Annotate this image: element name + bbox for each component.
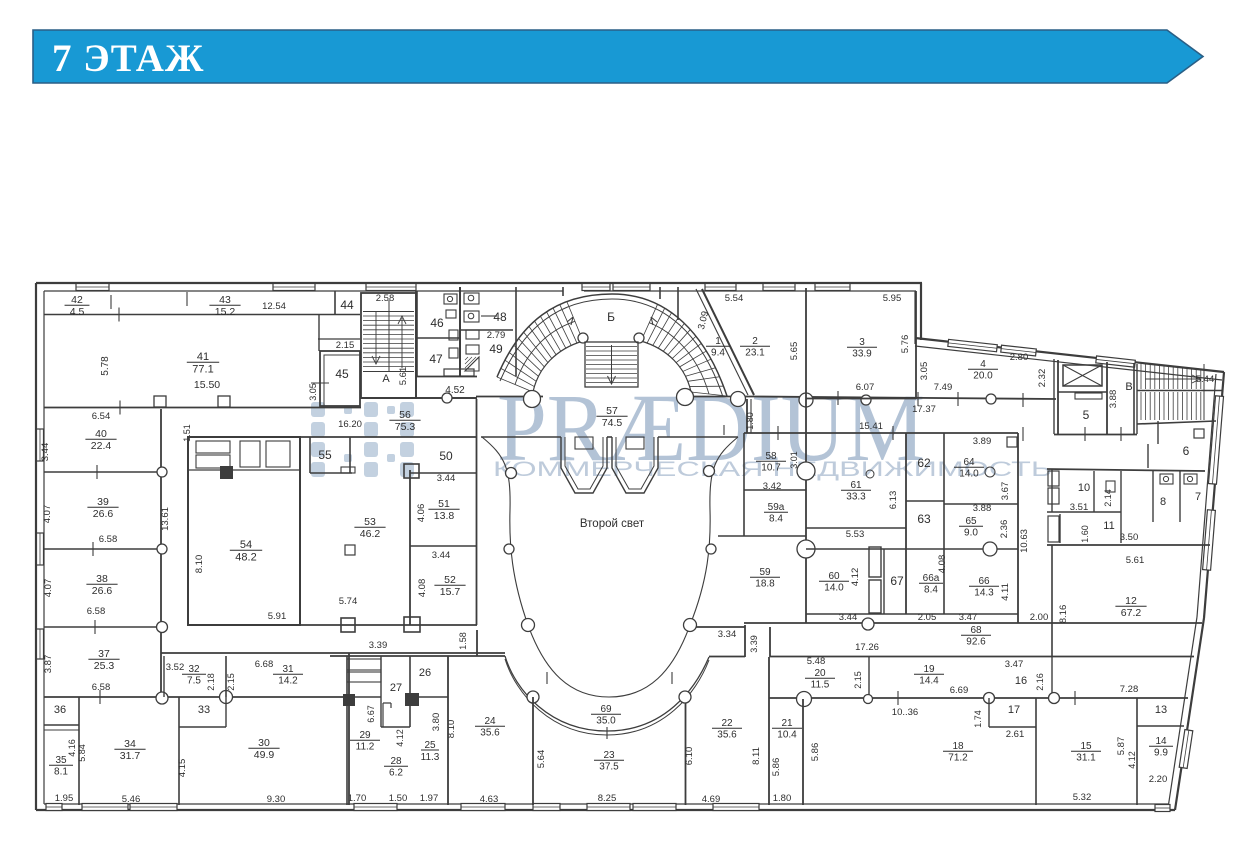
svg-text:33: 33 xyxy=(198,704,210,716)
svg-text:2.16: 2.16 xyxy=(1035,673,1045,691)
svg-text:3.47: 3.47 xyxy=(959,612,978,623)
svg-text:2.05: 2.05 xyxy=(918,612,937,623)
svg-text:2.18: 2.18 xyxy=(206,673,216,691)
svg-text:16.20: 16.20 xyxy=(338,419,362,430)
svg-text:1.80: 1.80 xyxy=(745,412,755,430)
svg-text:3.09: 3.09 xyxy=(696,310,711,331)
svg-text:26: 26 xyxy=(419,667,431,679)
svg-text:14.2: 14.2 xyxy=(278,676,298,687)
svg-text:7.49: 7.49 xyxy=(934,382,953,393)
svg-text:68: 68 xyxy=(970,625,982,636)
svg-text:15.41: 15.41 xyxy=(859,421,883,432)
svg-text:14.3: 14.3 xyxy=(974,588,994,599)
svg-text:8.4: 8.4 xyxy=(924,585,938,596)
svg-text:31.1: 31.1 xyxy=(1076,753,1096,764)
svg-text:59: 59 xyxy=(759,567,771,578)
svg-text:2.61: 2.61 xyxy=(1006,729,1025,740)
svg-text:Б: Б xyxy=(607,310,615,324)
svg-text:1.97: 1.97 xyxy=(420,793,439,804)
svg-text:3.39: 3.39 xyxy=(749,635,759,653)
svg-text:5.86: 5.86 xyxy=(810,743,821,762)
svg-text:44: 44 xyxy=(340,298,354,312)
svg-text:74.5: 74.5 xyxy=(602,417,623,429)
svg-text:4.12: 4.12 xyxy=(850,568,861,587)
svg-text:61: 61 xyxy=(850,480,862,491)
svg-text:7: 7 xyxy=(1195,491,1201,503)
svg-text:32: 32 xyxy=(188,664,200,675)
svg-text:1.60: 1.60 xyxy=(1080,525,1090,543)
svg-text:31.7: 31.7 xyxy=(120,750,141,762)
svg-text:2.15: 2.15 xyxy=(336,340,355,351)
svg-text:49: 49 xyxy=(489,342,503,356)
svg-text:2.15: 2.15 xyxy=(226,673,236,691)
svg-text:8.4: 8.4 xyxy=(769,514,783,525)
svg-text:17.26: 17.26 xyxy=(855,642,879,653)
svg-text:21: 21 xyxy=(781,718,793,729)
svg-text:6.07: 6.07 xyxy=(856,382,875,393)
svg-text:64: 64 xyxy=(963,457,975,468)
svg-text:47: 47 xyxy=(429,352,443,366)
svg-text:9.9: 9.9 xyxy=(1154,748,1168,759)
svg-text:35.6: 35.6 xyxy=(480,728,500,739)
svg-text:5.48: 5.48 xyxy=(807,656,826,667)
svg-text:35: 35 xyxy=(55,755,67,766)
svg-text:17.37: 17.37 xyxy=(912,404,936,415)
svg-text:4.63: 4.63 xyxy=(480,794,499,805)
svg-text:19: 19 xyxy=(923,664,935,675)
svg-text:3.44: 3.44 xyxy=(432,550,451,561)
svg-text:5.91: 5.91 xyxy=(268,611,287,622)
svg-text:11.5: 11.5 xyxy=(811,680,830,691)
svg-text:3.44: 3.44 xyxy=(437,473,456,484)
svg-text:41: 41 xyxy=(197,351,209,363)
svg-text:46.2: 46.2 xyxy=(360,528,381,540)
svg-text:2.58: 2.58 xyxy=(376,293,395,304)
svg-text:5.95: 5.95 xyxy=(883,293,902,304)
svg-text:33.9: 33.9 xyxy=(852,349,872,360)
svg-text:3.39: 3.39 xyxy=(369,640,388,651)
svg-text:3.80: 3.80 xyxy=(431,713,442,732)
svg-text:8.1: 8.1 xyxy=(54,767,68,778)
svg-text:4.08: 4.08 xyxy=(937,555,948,574)
svg-text:24: 24 xyxy=(484,716,496,727)
svg-text:66: 66 xyxy=(978,576,990,587)
svg-text:37: 37 xyxy=(98,648,110,660)
svg-text:25.3: 25.3 xyxy=(94,660,115,672)
svg-text:43: 43 xyxy=(219,294,231,306)
svg-text:50: 50 xyxy=(439,449,453,463)
svg-text:1.95: 1.95 xyxy=(55,793,74,804)
svg-text:8: 8 xyxy=(1160,496,1166,508)
svg-text:1: 1 xyxy=(715,336,721,347)
svg-text:18.8: 18.8 xyxy=(755,579,775,590)
svg-text:13.8: 13.8 xyxy=(434,510,455,522)
svg-text:6: 6 xyxy=(1183,444,1190,458)
svg-text:4.69: 4.69 xyxy=(702,794,721,805)
svg-text:67.2: 67.2 xyxy=(1121,607,1142,619)
svg-text:3.88: 3.88 xyxy=(973,503,992,514)
svg-text:10..36: 10..36 xyxy=(892,707,918,718)
svg-text:3.47: 3.47 xyxy=(1005,659,1024,670)
svg-text:15: 15 xyxy=(1080,741,1092,752)
svg-text:2.36: 2.36 xyxy=(999,520,1010,539)
svg-text:63: 63 xyxy=(917,512,931,526)
svg-text:В: В xyxy=(1125,381,1132,393)
svg-text:45: 45 xyxy=(335,367,349,381)
svg-text:20.0: 20.0 xyxy=(973,371,993,382)
svg-text:20: 20 xyxy=(814,668,826,679)
svg-text:1.74: 1.74 xyxy=(973,710,983,728)
svg-text:5.46: 5.46 xyxy=(122,794,141,805)
svg-text:35.6: 35.6 xyxy=(717,730,737,741)
svg-text:13: 13 xyxy=(1155,704,1167,716)
svg-text:А: А xyxy=(382,373,390,385)
svg-text:58: 58 xyxy=(765,451,777,462)
svg-text:5.74: 5.74 xyxy=(339,596,358,607)
svg-text:3.52: 3.52 xyxy=(166,662,185,673)
svg-text:37.5: 37.5 xyxy=(599,762,619,773)
svg-text:2.00: 2.00 xyxy=(1030,612,1049,623)
svg-text:5: 5 xyxy=(1083,408,1090,422)
svg-text:9.4: 9.4 xyxy=(711,348,725,359)
svg-text:6.10: 6.10 xyxy=(684,747,695,766)
svg-text:8.10: 8.10 xyxy=(194,555,205,574)
svg-text:6.58: 6.58 xyxy=(87,606,106,617)
svg-text:4: 4 xyxy=(980,359,986,370)
svg-text:9.0: 9.0 xyxy=(964,528,978,539)
svg-text:14.0: 14.0 xyxy=(824,583,844,594)
svg-text:3.50: 3.50 xyxy=(1120,532,1139,543)
svg-text:42: 42 xyxy=(71,294,83,306)
svg-text:3.05: 3.05 xyxy=(308,383,318,401)
svg-text:4.07: 4.07 xyxy=(42,505,53,524)
svg-text:3.89: 3.89 xyxy=(973,436,992,447)
svg-text:59a: 59a xyxy=(768,502,785,513)
svg-text:26.6: 26.6 xyxy=(93,508,114,520)
svg-text:6.58: 6.58 xyxy=(92,682,111,693)
svg-text:4.5: 4.5 xyxy=(70,306,85,318)
svg-text:8.16: 8.16 xyxy=(1058,605,1069,624)
svg-text:13.61: 13.61 xyxy=(160,507,171,531)
svg-text:4.12: 4.12 xyxy=(395,729,405,747)
svg-text:4.08: 4.08 xyxy=(417,579,428,598)
svg-text:15.7: 15.7 xyxy=(440,586,461,598)
svg-text:6.58: 6.58 xyxy=(99,534,118,545)
svg-text:15.2: 15.2 xyxy=(215,306,236,318)
svg-text:35.0: 35.0 xyxy=(596,716,616,727)
svg-text:6.67: 6.67 xyxy=(366,705,376,723)
svg-text:30: 30 xyxy=(258,737,270,749)
svg-text:3.05: 3.05 xyxy=(919,362,930,381)
svg-text:2.79: 2.79 xyxy=(487,330,506,341)
svg-text:4.11: 4.11 xyxy=(1000,583,1011,601)
svg-text:4.15: 4.15 xyxy=(177,759,188,778)
svg-text:38: 38 xyxy=(96,573,108,585)
svg-text:5.44: 5.44 xyxy=(1196,374,1215,385)
svg-text:11: 11 xyxy=(1103,520,1114,532)
svg-text:4.06: 4.06 xyxy=(416,504,427,523)
svg-text:31: 31 xyxy=(282,664,294,675)
svg-text:22.4: 22.4 xyxy=(91,440,112,452)
svg-text:3.01: 3.01 xyxy=(789,451,799,469)
svg-text:1.50: 1.50 xyxy=(389,793,408,804)
svg-text:6.68: 6.68 xyxy=(255,659,274,670)
svg-text:67: 67 xyxy=(890,574,904,588)
svg-text:3.67: 3.67 xyxy=(1000,482,1011,501)
svg-text:3.87: 3.87 xyxy=(43,655,54,674)
svg-text:40: 40 xyxy=(95,428,107,440)
svg-text:6.69: 6.69 xyxy=(950,685,969,696)
svg-text:1.58: 1.58 xyxy=(458,632,468,650)
svg-text:10: 10 xyxy=(1078,482,1090,494)
svg-text:7.5: 7.5 xyxy=(187,676,201,687)
svg-text:5.54: 5.54 xyxy=(725,293,744,304)
svg-text:23.1: 23.1 xyxy=(745,348,765,359)
svg-text:17: 17 xyxy=(1008,704,1020,716)
svg-text:92.6: 92.6 xyxy=(966,637,986,648)
svg-text:29: 29 xyxy=(359,730,371,741)
svg-text:57: 57 xyxy=(606,405,618,417)
svg-text:3.34: 3.34 xyxy=(718,629,737,640)
svg-text:15.50: 15.50 xyxy=(194,379,220,391)
svg-text:1.80: 1.80 xyxy=(773,793,792,804)
svg-text:9.30: 9.30 xyxy=(267,794,286,805)
svg-text:2.80: 2.80 xyxy=(1010,352,1029,363)
svg-text:5.53: 5.53 xyxy=(846,529,865,540)
svg-text:28: 28 xyxy=(390,756,402,767)
svg-text:71.2: 71.2 xyxy=(948,753,968,764)
svg-text:49.9: 49.9 xyxy=(254,749,275,761)
svg-text:65: 65 xyxy=(965,516,977,527)
svg-text:34: 34 xyxy=(124,738,136,750)
svg-text:5.65: 5.65 xyxy=(789,342,800,361)
svg-text:54: 54 xyxy=(240,539,252,551)
svg-text:36: 36 xyxy=(54,704,66,716)
svg-text:69: 69 xyxy=(600,704,612,715)
svg-text:10.7: 10.7 xyxy=(761,463,781,474)
svg-text:12: 12 xyxy=(1125,595,1137,607)
svg-text:14: 14 xyxy=(1155,736,1167,747)
svg-text:6.13: 6.13 xyxy=(888,491,899,510)
svg-text:3: 3 xyxy=(859,337,865,348)
svg-text:8.11: 8.11 xyxy=(751,747,762,765)
svg-text:60: 60 xyxy=(828,571,840,582)
svg-text:2.32: 2.32 xyxy=(1037,369,1048,388)
svg-text:5.84: 5.84 xyxy=(77,744,87,762)
svg-text:2.20: 2.20 xyxy=(1149,774,1168,785)
svg-text:48: 48 xyxy=(493,310,507,324)
svg-text:5.61: 5.61 xyxy=(1126,555,1145,566)
svg-text:3.88: 3.88 xyxy=(1108,390,1119,409)
svg-text:55: 55 xyxy=(318,448,332,462)
svg-text:18: 18 xyxy=(952,741,964,752)
svg-text:5.87: 5.87 xyxy=(1116,737,1127,756)
svg-text:12.54: 12.54 xyxy=(262,301,286,312)
svg-text:46: 46 xyxy=(430,316,444,330)
svg-text:10.63: 10.63 xyxy=(1019,529,1030,553)
svg-text:5.61: 5.61 xyxy=(398,367,409,386)
svg-text:5.32: 5.32 xyxy=(1073,792,1092,803)
svg-text:5.76: 5.76 xyxy=(900,335,911,354)
svg-text:11.2: 11.2 xyxy=(356,742,375,753)
svg-text:5.78: 5.78 xyxy=(100,356,111,376)
svg-text:27: 27 xyxy=(390,682,402,694)
svg-text:Второй свет: Второй свет xyxy=(580,518,645,530)
svg-text:11.3: 11.3 xyxy=(421,752,440,763)
svg-text:6.2: 6.2 xyxy=(389,768,403,779)
svg-text:51: 51 xyxy=(438,498,450,510)
svg-text:53: 53 xyxy=(364,516,376,528)
svg-text:14.0: 14.0 xyxy=(959,469,979,480)
svg-text:4.16: 4.16 xyxy=(67,739,77,757)
svg-text:16: 16 xyxy=(1015,675,1027,687)
svg-text:1.70: 1.70 xyxy=(348,793,367,804)
svg-text:10.4: 10.4 xyxy=(777,730,797,741)
svg-text:26.6: 26.6 xyxy=(92,585,113,597)
svg-text:5.64: 5.64 xyxy=(536,750,547,769)
svg-text:62: 62 xyxy=(917,456,931,470)
svg-text:77.1: 77.1 xyxy=(192,364,213,376)
svg-text:66a: 66a xyxy=(923,573,940,584)
svg-text:4.12: 4.12 xyxy=(1127,751,1137,769)
svg-text:6.54: 6.54 xyxy=(92,411,111,422)
svg-text:25: 25 xyxy=(424,740,436,751)
svg-text:23: 23 xyxy=(603,750,615,761)
svg-text:48.2: 48.2 xyxy=(235,552,256,564)
svg-text:7.28: 7.28 xyxy=(1120,684,1139,695)
svg-text:3.44: 3.44 xyxy=(839,612,858,623)
svg-text:33.3: 33.3 xyxy=(846,492,866,503)
svg-text:2.15: 2.15 xyxy=(853,671,863,689)
svg-text:8.25: 8.25 xyxy=(598,793,617,804)
svg-text:3.44: 3.44 xyxy=(40,443,51,462)
svg-text:56: 56 xyxy=(399,409,411,421)
svg-text:5.86: 5.86 xyxy=(771,758,782,777)
svg-text:7 ЭТАЖ: 7 ЭТАЖ xyxy=(52,37,205,80)
svg-text:52: 52 xyxy=(444,574,456,586)
svg-text:2: 2 xyxy=(752,336,758,347)
svg-text:22: 22 xyxy=(721,718,733,729)
svg-text:75.3: 75.3 xyxy=(395,421,416,433)
svg-text:39: 39 xyxy=(97,496,109,508)
svg-text:4.07: 4.07 xyxy=(43,579,54,598)
svg-text:14.4: 14.4 xyxy=(919,676,939,687)
